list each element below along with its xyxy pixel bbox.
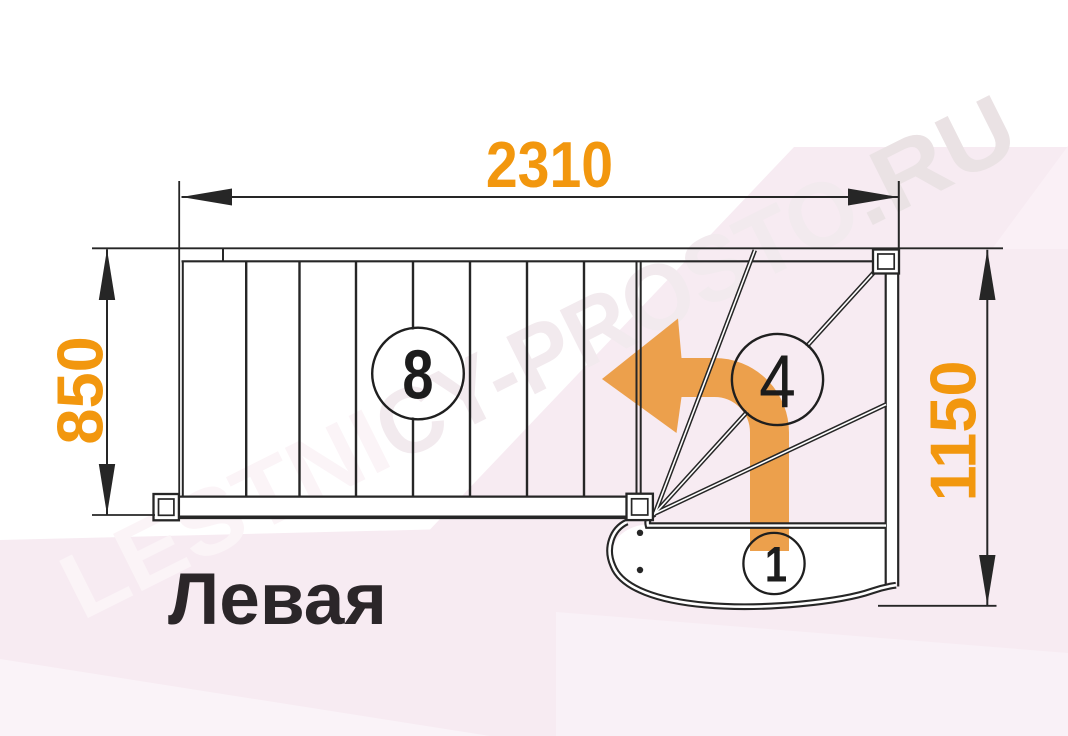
svg-text:4: 4: [759, 339, 796, 423]
svg-text:1: 1: [765, 536, 787, 592]
svg-text:8: 8: [402, 337, 433, 414]
svg-text:850: 850: [44, 336, 117, 444]
svg-text:2310: 2310: [486, 129, 613, 201]
svg-text:1150: 1150: [917, 360, 990, 501]
svg-text:Левая: Левая: [168, 559, 387, 640]
